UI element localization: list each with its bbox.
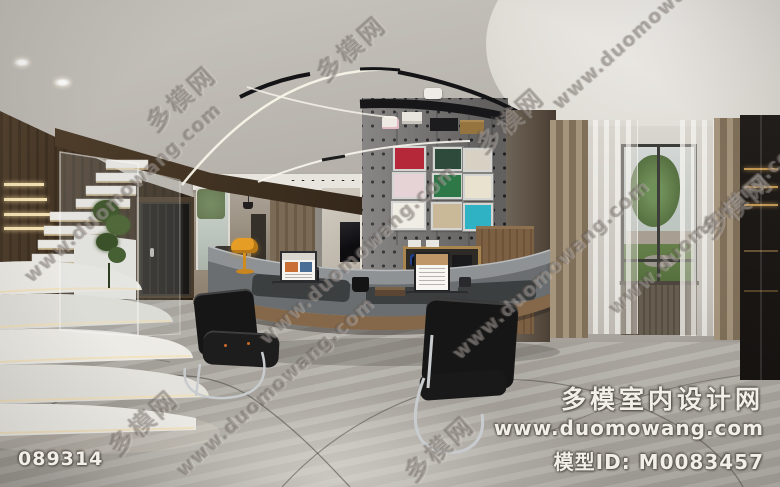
site-name: 多模室内设计网 — [561, 380, 764, 416]
site-url: www.duomowang.com — [494, 416, 764, 440]
panorama-scene: www.duomowang.com 多模网 www.duomowang.com … — [0, 0, 780, 487]
model-id: 模型ID: M0083457 — [554, 446, 764, 475]
image-code: 089314 — [18, 448, 103, 470]
